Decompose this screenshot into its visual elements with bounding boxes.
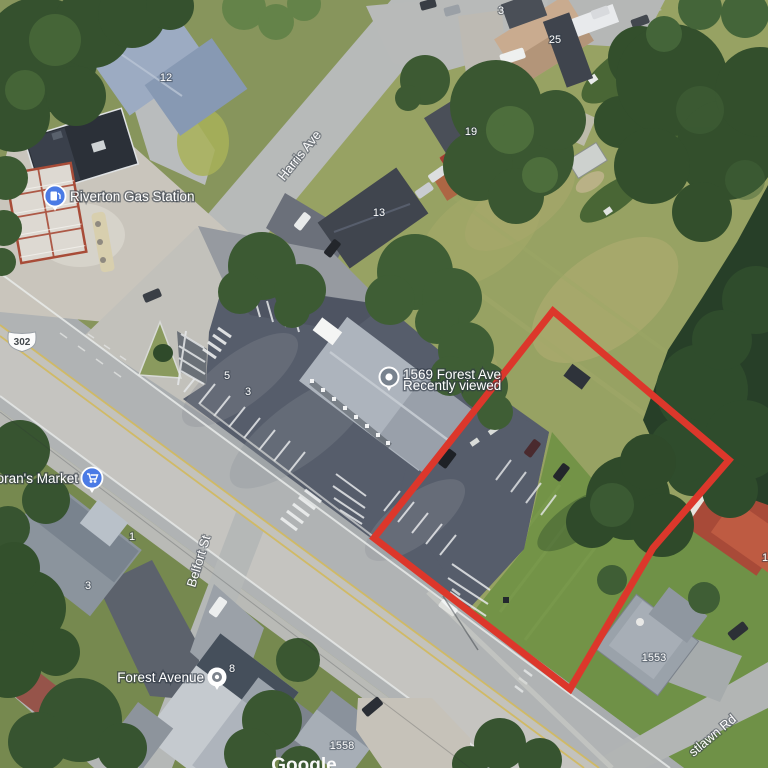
- svg-text:3: 3: [245, 386, 251, 398]
- svg-text:19: 19: [465, 126, 477, 138]
- svg-text:Forest Avenue: Forest Avenue: [117, 670, 204, 685]
- svg-text:25: 25: [549, 34, 561, 46]
- svg-text:3: 3: [498, 5, 504, 17]
- svg-text:5: 5: [224, 370, 230, 382]
- svg-text:1558: 1558: [330, 740, 354, 752]
- svg-text:1: 1: [129, 531, 135, 543]
- svg-text:1: 1: [762, 552, 768, 564]
- svg-text:13: 13: [373, 207, 385, 219]
- svg-text:302: 302: [14, 337, 31, 348]
- svg-text:3: 3: [85, 580, 91, 592]
- svg-text:8: 8: [229, 663, 235, 675]
- svg-text:12: 12: [160, 72, 172, 84]
- svg-text:Moran's Market: Moran's Market: [0, 471, 78, 486]
- svg-text:Recently viewed: Recently viewed: [403, 378, 501, 393]
- svg-text:Riverton Gas Station: Riverton Gas Station: [70, 189, 195, 204]
- svg-text:1553: 1553: [642, 652, 666, 664]
- svg-text:Google: Google: [271, 755, 336, 768]
